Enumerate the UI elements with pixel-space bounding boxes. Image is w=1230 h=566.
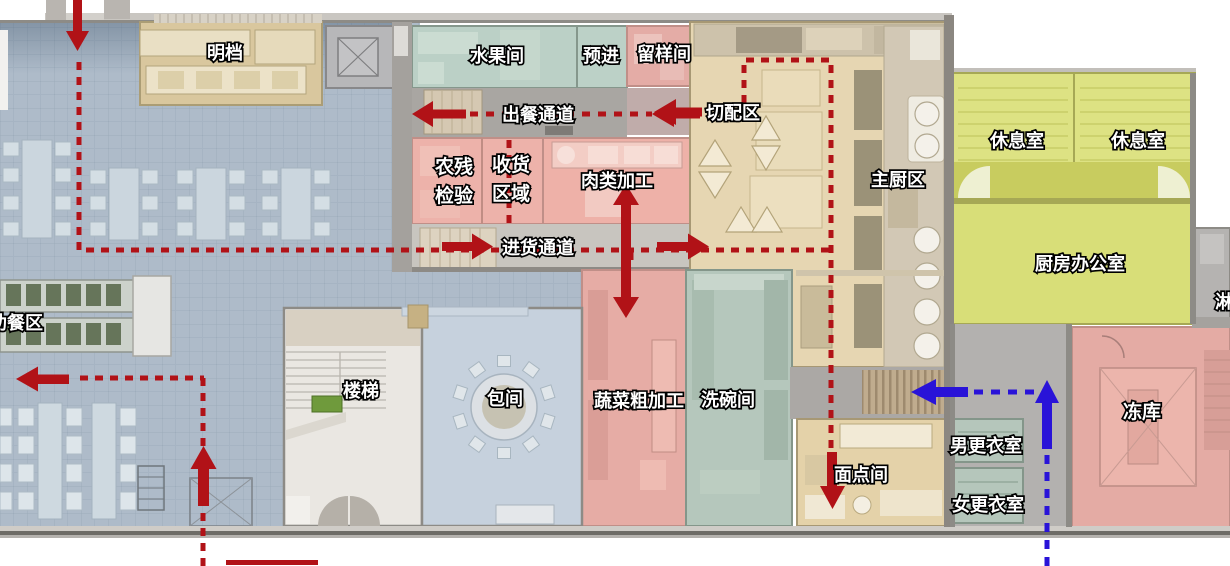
svg-text:农残: 农残: [434, 155, 473, 178]
svg-text:休息室: 休息室: [1110, 130, 1165, 151]
svg-text:切配区: 切配区: [706, 103, 760, 123]
svg-text:包间: 包间: [487, 388, 523, 409]
svg-text:楼梯: 楼梯: [343, 380, 379, 401]
svg-text:洗碗间: 洗碗间: [701, 389, 755, 410]
svg-text:休息室: 休息室: [989, 130, 1044, 151]
svg-text:区域: 区域: [492, 182, 530, 205]
svg-text:主厨区: 主厨区: [871, 169, 925, 190]
svg-text:进货通道: 进货通道: [502, 237, 574, 258]
svg-text:明档: 明档: [207, 42, 243, 63]
svg-text:淋: 淋: [1215, 291, 1230, 312]
svg-text:检验: 检验: [435, 184, 474, 207]
svg-text:预进: 预进: [583, 46, 619, 66]
svg-text:助餐区: 助餐区: [0, 312, 43, 333]
svg-text:留样间: 留样间: [637, 43, 691, 64]
svg-text:收货: 收货: [492, 153, 530, 176]
svg-text:厨房办公室: 厨房办公室: [1035, 253, 1125, 274]
svg-text:女更衣室: 女更衣室: [952, 494, 1024, 515]
svg-text:肉类加工: 肉类加工: [581, 170, 653, 191]
svg-text:男更衣室: 男更衣室: [950, 435, 1022, 456]
svg-text:冻库: 冻库: [1123, 400, 1161, 423]
svg-text:面点间: 面点间: [834, 464, 888, 485]
svg-text:出餐通道: 出餐通道: [502, 104, 574, 125]
svg-text:蔬菜粗加工: 蔬菜粗加工: [594, 390, 684, 411]
svg-text:水果间: 水果间: [470, 45, 524, 66]
